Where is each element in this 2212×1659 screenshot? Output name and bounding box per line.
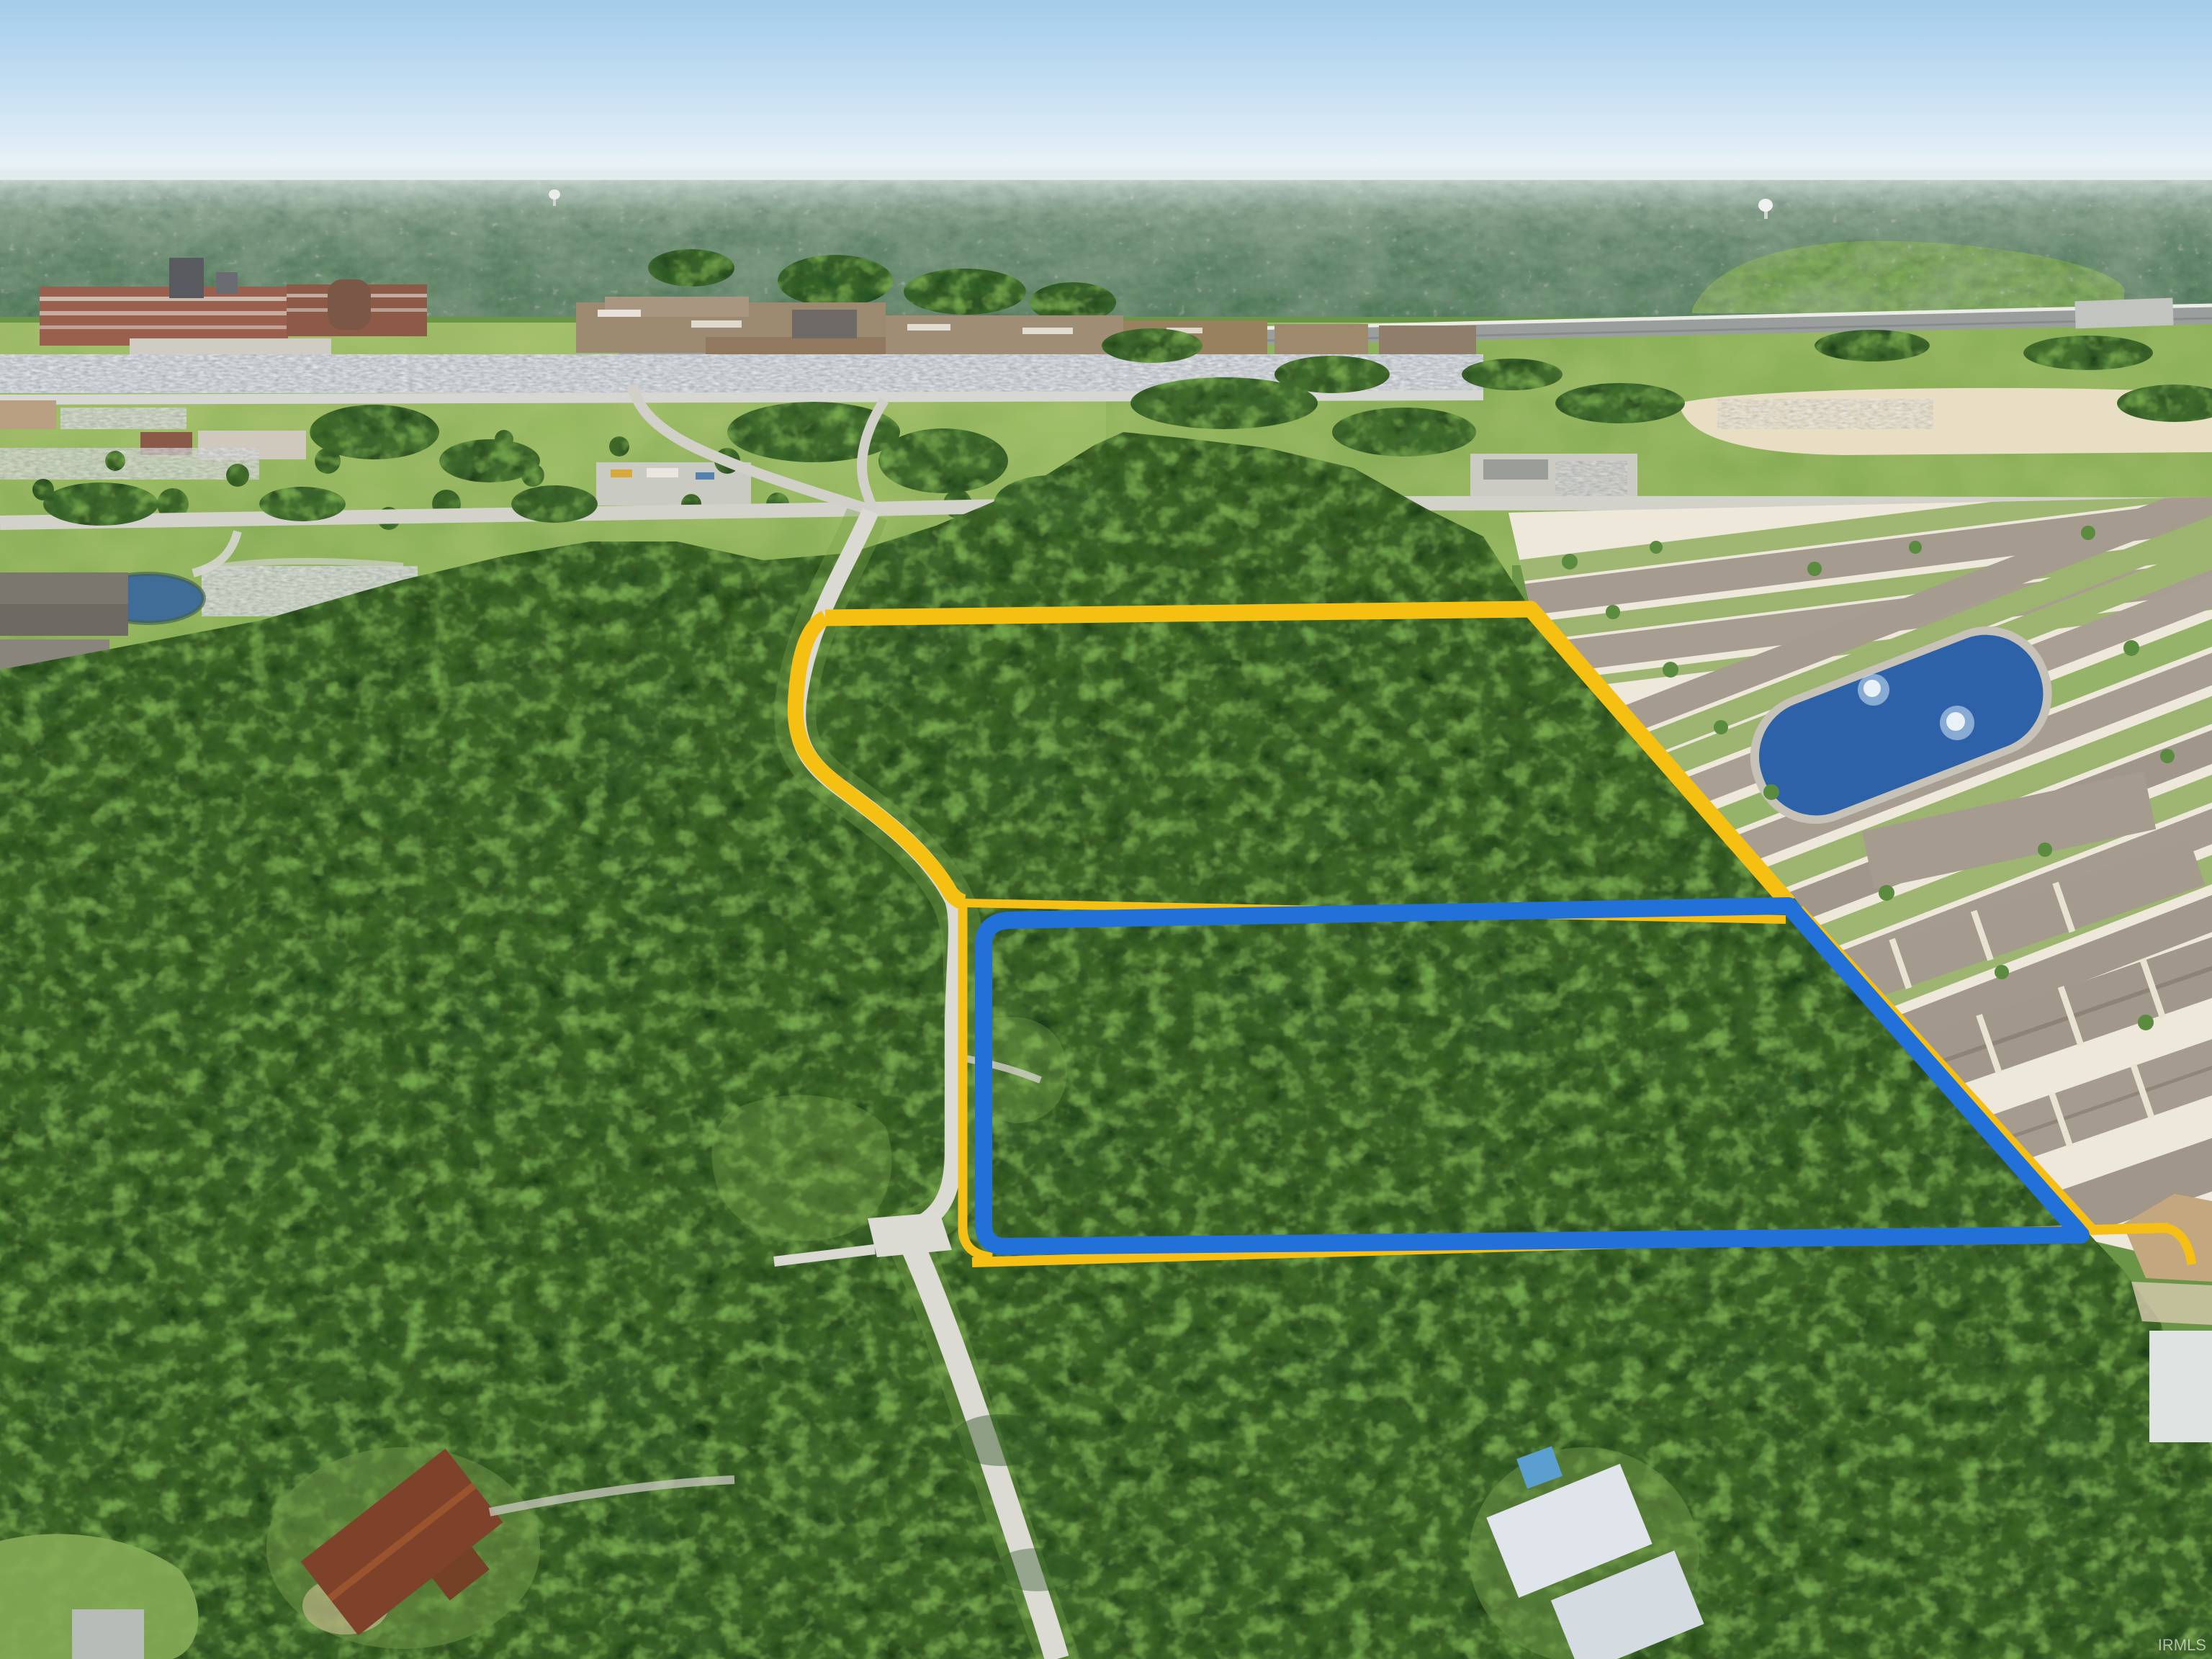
svg-text:IRMLS: IRMLS bbox=[2158, 1636, 2206, 1654]
